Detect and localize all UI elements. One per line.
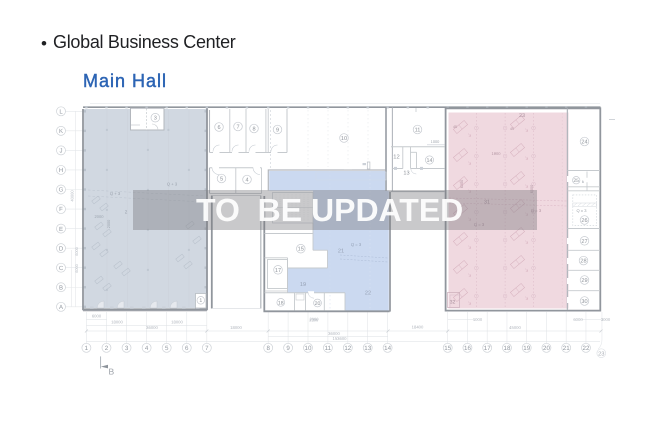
svg-text:153600: 153600 <box>333 336 348 341</box>
svg-text:10: 10 <box>305 345 312 352</box>
svg-text:F: F <box>59 206 63 213</box>
svg-text:24: 24 <box>581 140 587 146</box>
svg-text:8: 8 <box>266 345 270 352</box>
svg-text:B: B <box>582 180 584 184</box>
svg-text:40000: 40000 <box>70 190 75 202</box>
svg-text:B: B <box>59 284 63 291</box>
svg-text:8: 8 <box>252 127 255 133</box>
svg-text:17: 17 <box>484 345 491 352</box>
svg-text:6: 6 <box>185 345 189 352</box>
svg-text:H: H <box>59 167 63 174</box>
svg-text:29: 29 <box>581 278 587 284</box>
svg-text:18: 18 <box>278 300 284 306</box>
svg-text:TO BE UPDATED: TO BE UPDATED <box>196 192 463 228</box>
svg-text:14: 14 <box>384 345 391 352</box>
svg-text:1900: 1900 <box>492 151 502 156</box>
svg-text:30: 30 <box>581 299 587 305</box>
svg-text:2000: 2000 <box>95 214 105 219</box>
svg-text:C: C <box>59 265 64 272</box>
svg-text:32: 32 <box>450 300 456 306</box>
svg-text:7: 7 <box>236 125 239 131</box>
svg-text:Q = 3: Q = 3 <box>351 242 362 247</box>
svg-text:13: 13 <box>364 345 371 352</box>
svg-text:2000: 2000 <box>310 317 320 322</box>
svg-text:7: 7 <box>205 345 209 352</box>
svg-text:19: 19 <box>300 282 306 288</box>
svg-text:12: 12 <box>344 345 351 352</box>
svg-text:4: 4 <box>245 178 248 184</box>
svg-text:21: 21 <box>563 345 570 352</box>
svg-text:18400: 18400 <box>412 325 424 330</box>
svg-text:G: G <box>59 187 64 194</box>
svg-text:Q = 3: Q = 3 <box>577 208 588 213</box>
svg-text:A: A <box>59 304 63 311</box>
svg-text:45000: 45000 <box>509 325 521 330</box>
svg-text:16: 16 <box>464 345 471 352</box>
svg-text:19: 19 <box>523 345 530 352</box>
svg-text:23: 23 <box>598 350 604 357</box>
svg-text:6000: 6000 <box>92 313 102 318</box>
svg-text:5: 5 <box>165 345 169 352</box>
svg-text:2000: 2000 <box>107 220 111 228</box>
svg-text:18000: 18000 <box>171 319 183 324</box>
svg-text:1: 1 <box>85 345 89 352</box>
svg-text:9: 9 <box>276 128 279 134</box>
svg-text:26: 26 <box>581 218 587 224</box>
svg-text:11: 11 <box>325 345 332 352</box>
svg-text:14: 14 <box>427 158 433 164</box>
svg-text:9: 9 <box>286 345 290 352</box>
svg-text:3000: 3000 <box>601 317 611 322</box>
svg-text:11: 11 <box>415 128 421 134</box>
svg-text:22: 22 <box>583 345 590 352</box>
svg-text:18000: 18000 <box>230 325 242 330</box>
svg-text:1000: 1000 <box>431 139 440 144</box>
svg-text:5: 5 <box>220 177 223 183</box>
svg-text:28: 28 <box>580 259 586 265</box>
svg-text:21: 21 <box>338 249 344 255</box>
svg-text:17: 17 <box>275 268 281 274</box>
svg-text:45: 45 <box>453 125 457 129</box>
svg-text:6000: 6000 <box>75 247 79 255</box>
svg-text:K: K <box>59 128 63 135</box>
svg-text:15: 15 <box>444 345 451 352</box>
svg-text:3: 3 <box>154 116 157 122</box>
svg-text:10: 10 <box>341 136 347 142</box>
svg-text:6: 6 <box>217 125 220 131</box>
svg-text:20: 20 <box>543 345 550 352</box>
svg-text:27: 27 <box>581 239 587 245</box>
svg-text:2: 2 <box>105 345 109 352</box>
svg-text:J: J <box>60 148 63 155</box>
svg-text:Q + 3: Q + 3 <box>167 182 178 187</box>
svg-text:25: 25 <box>573 178 579 184</box>
svg-text:Q + 3: Q + 3 <box>110 191 121 196</box>
svg-text:6000: 6000 <box>75 264 79 272</box>
svg-text:B: B <box>109 367 115 377</box>
svg-text:12: 12 <box>393 154 399 161</box>
svg-text:22: 22 <box>365 291 371 297</box>
svg-text:36000: 36000 <box>328 331 340 336</box>
svg-text:45: 45 <box>510 127 514 131</box>
svg-text:13: 13 <box>403 171 409 177</box>
svg-text:2: 2 <box>125 210 128 215</box>
svg-text:18: 18 <box>504 345 511 352</box>
svg-text:D: D <box>59 245 64 252</box>
svg-text:3: 3 <box>125 345 129 352</box>
svg-text:E: E <box>59 226 63 233</box>
svg-text:23: 23 <box>519 113 525 119</box>
svg-text:1000: 1000 <box>473 317 483 322</box>
svg-text:1: 1 <box>199 298 202 304</box>
svg-text:20: 20 <box>315 301 321 307</box>
svg-text:36000: 36000 <box>146 325 158 330</box>
svg-text:4: 4 <box>145 345 149 352</box>
svg-text:18000: 18000 <box>111 319 123 324</box>
svg-text:6000: 6000 <box>573 317 583 322</box>
svg-text:15: 15 <box>298 247 304 253</box>
